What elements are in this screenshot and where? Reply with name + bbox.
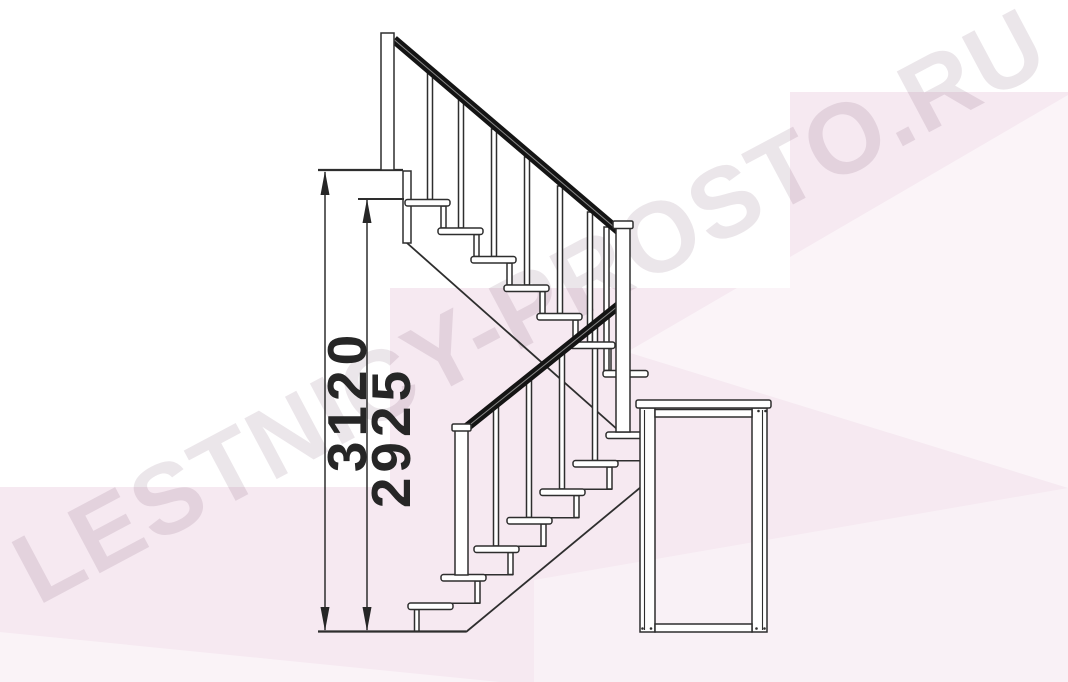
newel-post-bottom <box>455 427 468 575</box>
tread <box>507 518 552 525</box>
baluster <box>494 405 499 546</box>
newel-post-bottom-cap <box>452 424 471 431</box>
platform-left-leg <box>640 408 655 632</box>
tread <box>438 228 483 235</box>
newel-post-mid <box>616 228 630 432</box>
support <box>475 581 480 603</box>
tread <box>537 314 582 321</box>
platform-top-plate <box>636 400 771 408</box>
support <box>541 524 546 546</box>
support <box>441 206 446 228</box>
support <box>474 235 479 257</box>
support <box>607 467 612 489</box>
newel-post-top <box>381 33 394 170</box>
tread <box>405 200 450 207</box>
support <box>540 292 545 314</box>
baluster <box>527 379 532 518</box>
tread <box>504 285 549 292</box>
staircase-drawing: LESTNICY-PROSTO.RU <box>0 0 1068 682</box>
tread <box>474 546 519 553</box>
platform-top-rail <box>655 410 752 418</box>
baluster <box>428 73 433 200</box>
baluster <box>459 100 464 228</box>
platform-right-leg <box>752 408 767 632</box>
tread <box>408 603 453 610</box>
dimension-label-2925: 2925 <box>360 366 422 508</box>
tread <box>471 257 516 264</box>
support <box>507 263 512 285</box>
landing-support-bar <box>403 171 411 243</box>
support <box>574 496 579 518</box>
newel-post-mid-cap <box>613 221 633 229</box>
platform-bottom-rail <box>655 624 752 632</box>
tread <box>540 489 585 496</box>
baluster <box>558 186 563 314</box>
support <box>508 553 513 575</box>
tread <box>573 461 618 468</box>
baluster <box>525 157 530 285</box>
baluster <box>492 129 497 257</box>
bottom-step-support <box>415 610 420 632</box>
staircase-drawing-page: LESTNICY-PROSTO.RU <box>0 0 1068 682</box>
baluster <box>560 352 565 489</box>
